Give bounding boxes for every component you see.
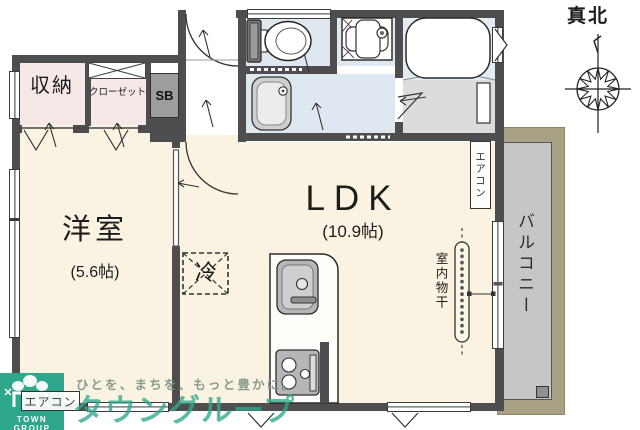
aircon-label-box: エアコン bbox=[21, 391, 80, 411]
window bbox=[492, 27, 503, 63]
sliding-door bbox=[174, 150, 179, 246]
sliding-window-balcony bbox=[492, 221, 504, 349]
closet-label: クローゼット bbox=[86, 88, 149, 98]
bath-floor-lower bbox=[403, 80, 495, 133]
ldk-size: (10.9帖) bbox=[288, 223, 418, 240]
wall bbox=[172, 135, 180, 148]
hallway-floor bbox=[186, 18, 238, 135]
wall bbox=[138, 125, 152, 133]
wall bbox=[495, 10, 504, 411]
shoe-box: SB bbox=[150, 73, 179, 118]
wall bbox=[245, 66, 337, 74]
toilet-floor bbox=[246, 18, 330, 66]
window bbox=[9, 169, 20, 338]
vent-mark bbox=[392, 413, 418, 427]
western-room-size: (5.6帖) bbox=[28, 265, 162, 281]
wall bbox=[245, 133, 504, 141]
logo-text: TOWN GROUP bbox=[0, 415, 64, 430]
wall bbox=[12, 125, 22, 133]
wall bbox=[330, 10, 337, 74]
window bbox=[387, 402, 471, 412]
wall bbox=[73, 125, 89, 133]
closet-upper-cabinet bbox=[88, 62, 146, 79]
ldk-label: LDK bbox=[288, 181, 418, 216]
washroom-floor bbox=[246, 74, 395, 133]
wall bbox=[395, 122, 403, 141]
bath-floor-upper bbox=[403, 18, 495, 80]
balcony-drain bbox=[536, 386, 549, 398]
wall bbox=[150, 118, 186, 142]
compass-icon bbox=[565, 34, 631, 133]
western-room-label: 洋室 bbox=[28, 216, 162, 245]
indoor-drying-label: 室内物干 bbox=[434, 252, 447, 344]
brand-watermark: タウングループ bbox=[73, 385, 295, 430]
closet-floor bbox=[91, 79, 146, 125]
aircon-label: エアコン bbox=[473, 151, 488, 199]
wall bbox=[395, 10, 403, 78]
floor-plan: SB bbox=[0, 0, 640, 430]
shoe-box-label: SB bbox=[155, 88, 173, 103]
aircon-label: エアコン bbox=[24, 393, 76, 410]
aircon-label-box: エアコン bbox=[470, 141, 491, 209]
storage-label: 収納 bbox=[18, 76, 86, 96]
laundry-pan-floor bbox=[337, 18, 395, 66]
refrigerator-label: 冷 bbox=[192, 262, 220, 284]
balcony-label: バルコニー bbox=[516, 212, 533, 352]
window bbox=[247, 9, 331, 19]
wall bbox=[238, 10, 246, 142]
true-north-label: 真北 bbox=[567, 7, 609, 26]
